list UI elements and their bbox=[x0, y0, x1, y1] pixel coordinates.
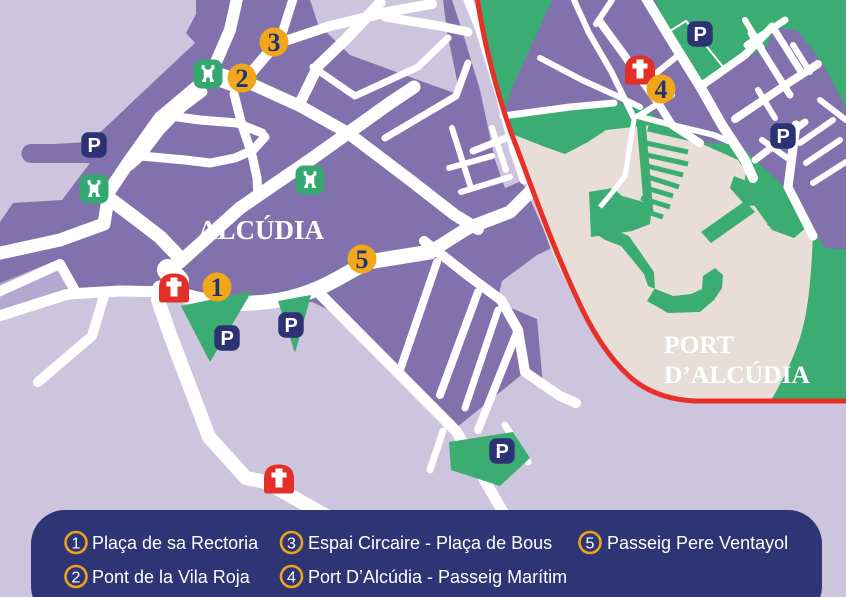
svg-text:5: 5 bbox=[586, 536, 595, 553]
svg-text:Passeig Pere Ventayol: Passeig Pere Ventayol bbox=[607, 533, 788, 553]
svg-text:D’ALCÚDIA: D’ALCÚDIA bbox=[664, 360, 811, 389]
svg-text:2: 2 bbox=[72, 570, 81, 587]
svg-text:1: 1 bbox=[211, 273, 224, 302]
svg-text:Plaça de sa Rectoria: Plaça de sa Rectoria bbox=[92, 533, 259, 553]
svg-text:2: 2 bbox=[236, 64, 249, 93]
svg-text:Espai Circaire - Plaça de Bous: Espai Circaire - Plaça de Bous bbox=[308, 533, 552, 553]
svg-text:Pont de la Vila Roja: Pont de la Vila Roja bbox=[92, 567, 251, 587]
svg-text:3: 3 bbox=[287, 536, 296, 553]
svg-text:4: 4 bbox=[287, 570, 296, 587]
svg-text:4: 4 bbox=[655, 75, 668, 104]
svg-text:Port D’Alcúdia - Passeig Marít: Port D’Alcúdia - Passeig Marítim bbox=[308, 567, 567, 587]
svg-text:PORT: PORT bbox=[664, 330, 734, 359]
svg-text:5: 5 bbox=[356, 245, 369, 274]
svg-text:3: 3 bbox=[268, 28, 281, 57]
svg-text:1: 1 bbox=[72, 536, 81, 553]
svg-text:ALCÚDIA: ALCÚDIA bbox=[198, 215, 325, 245]
